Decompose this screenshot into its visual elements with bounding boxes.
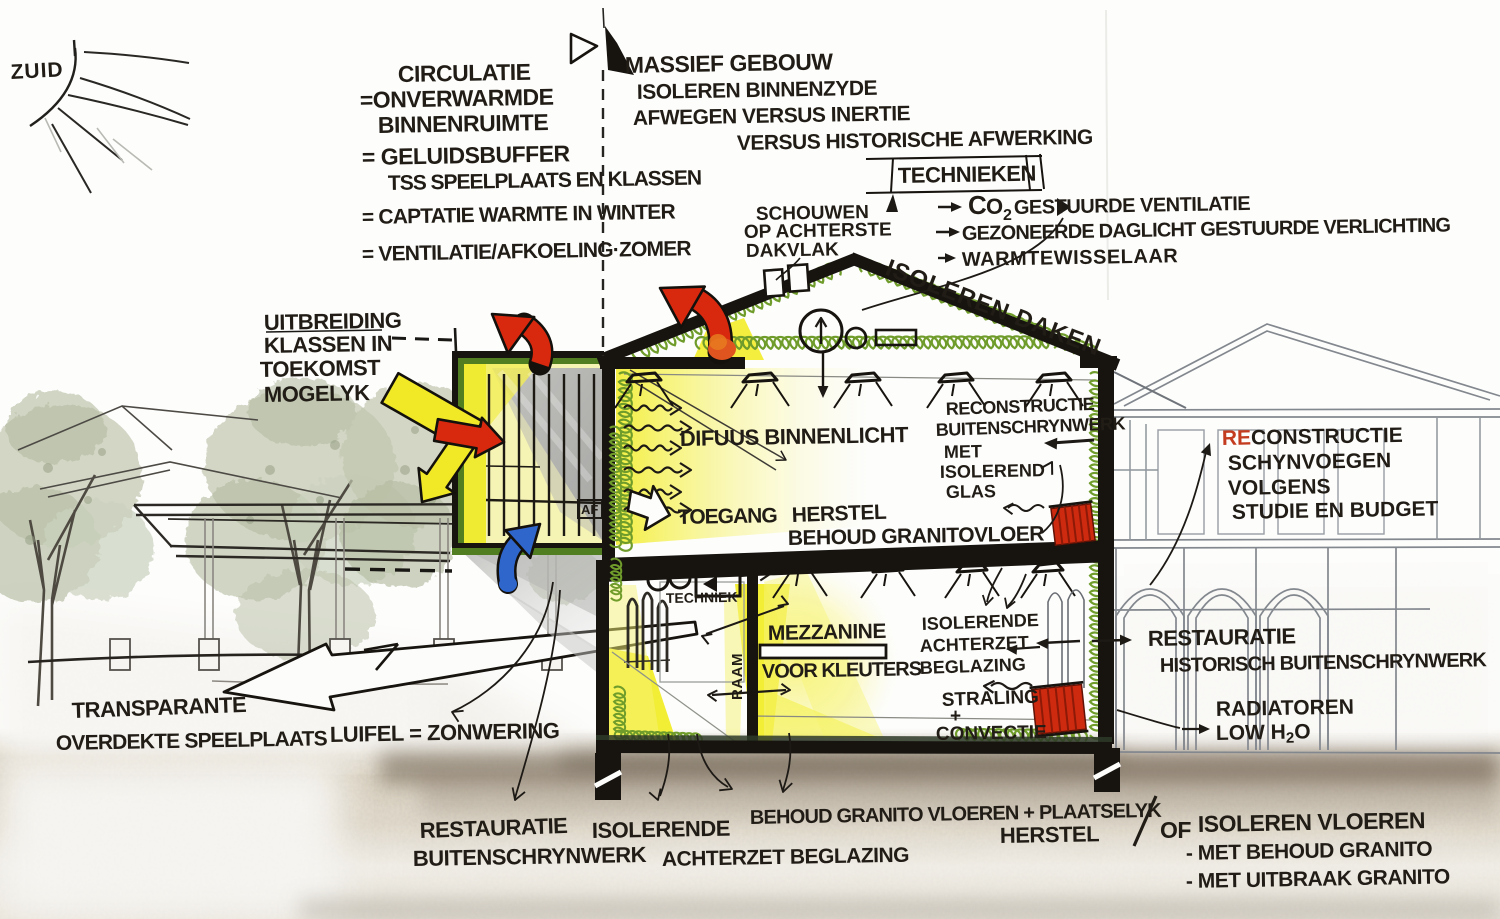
svg-text:HERSTEL: HERSTEL [1000,821,1100,848]
svg-text:ZUID: ZUID [10,58,64,84]
svg-text:LUIFEL = ZONWERING: LUIFEL = ZONWERING [330,718,560,747]
svg-text:MEZZANINE: MEZZANINE [768,620,887,645]
svg-text:C: C [968,190,987,220]
svg-text:WARMTEWISSELAAR: WARMTEWISSELAAR [962,245,1179,271]
svg-text:- MET UITBRAAK GRANITO: - MET UITBRAAK GRANITO [1186,865,1450,893]
svg-text:RECONSTRUCTIE: RECONSTRUCTIE [1222,424,1403,450]
svg-text:ISOLERENDE: ISOLERENDE [592,816,730,843]
svg-text:SCHYNVOEGEN: SCHYNVOEGEN [1228,449,1392,475]
svg-text:AFWEGEN VERSUS INERTIE: AFWEGEN VERSUS INERTIE [633,102,911,130]
svg-text:KLASSEN IN: KLASSEN IN [264,331,393,358]
svg-text:BEHOUD GRANITOVLOER: BEHOUD GRANITOVLOER [788,523,1045,550]
svg-text:CONVECTIE: CONVECTIE [936,722,1047,745]
svg-text:OF: OF [1160,817,1191,843]
svg-text:= GELUIDSBUFFER: = GELUIDSBUFFER [362,140,571,170]
svg-text:ISOLEREN VLOEREN: ISOLEREN VLOEREN [1198,807,1426,837]
svg-text:AF: AF [581,502,598,517]
svg-text:TECHNIEKEN: TECHNIEKEN [898,161,1036,188]
svg-text:TOEGANG: TOEGANG [678,504,778,529]
svg-text:ISOLERENDE: ISOLERENDE [921,610,1039,634]
svg-text:TECHNIEK: TECHNIEK [666,589,738,606]
svg-text:OVERDEKTE SPEELPLAATS: OVERDEKTE SPEELPLAATS [56,727,328,755]
svg-text:GLAS: GLAS [946,481,996,502]
svg-text:O: O [986,194,1003,219]
svg-text:VOLGENS: VOLGENS [1228,475,1331,500]
svg-text:VOOR KLEUTERS: VOOR KLEUTERS [762,658,922,683]
svg-text:- MET BEHOUD GRANITO: - MET BEHOUD GRANITO [1186,838,1433,865]
svg-text:RESTAURATIE: RESTAURATIE [419,813,567,843]
svg-text:ISOLEREND: ISOLEREND [940,460,1045,482]
svg-text:HERSTEL: HERSTEL [791,501,887,527]
svg-text:MET: MET [944,441,982,462]
svg-text:GESTUURDE VENTILATIE: GESTUURDE VENTILATIE [1014,193,1251,219]
svg-text:BEGLAZING: BEGLAZING [919,654,1026,678]
svg-text:DIFUUS BINNENLICHT: DIFUUS BINNENLICHT [680,422,910,451]
svg-text:TOEKOMST: TOEKOMST [260,355,382,382]
svg-text:MOGELYK: MOGELYK [264,380,371,407]
svg-text:ACHTERZET: ACHTERZET [919,632,1029,656]
svg-text:ISOLEREN BINNENZYDE: ISOLEREN BINNENZYDE [637,77,878,104]
svg-text:BUITENSCHRYNWERK: BUITENSCHRYNWERK [413,842,647,871]
svg-text:MASSIEF GEBOUW: MASSIEF GEBOUW [625,48,834,78]
svg-text:BINNENRUIMTE: BINNENRUIMTE [378,109,549,138]
svg-text:RADIATOREN: RADIATOREN [1216,696,1354,721]
svg-text:STUDIE EN BUDGET: STUDIE EN BUDGET [1232,497,1439,524]
svg-text:DAKVLAK: DAKVLAK [746,239,840,262]
svg-text:RESTAURATIE: RESTAURATIE [1148,623,1296,651]
svg-text:CIRCULATIE: CIRCULATIE [398,59,531,87]
svg-text:ACHTERZET BEGLAZING: ACHTERZET BEGLAZING [662,844,910,871]
